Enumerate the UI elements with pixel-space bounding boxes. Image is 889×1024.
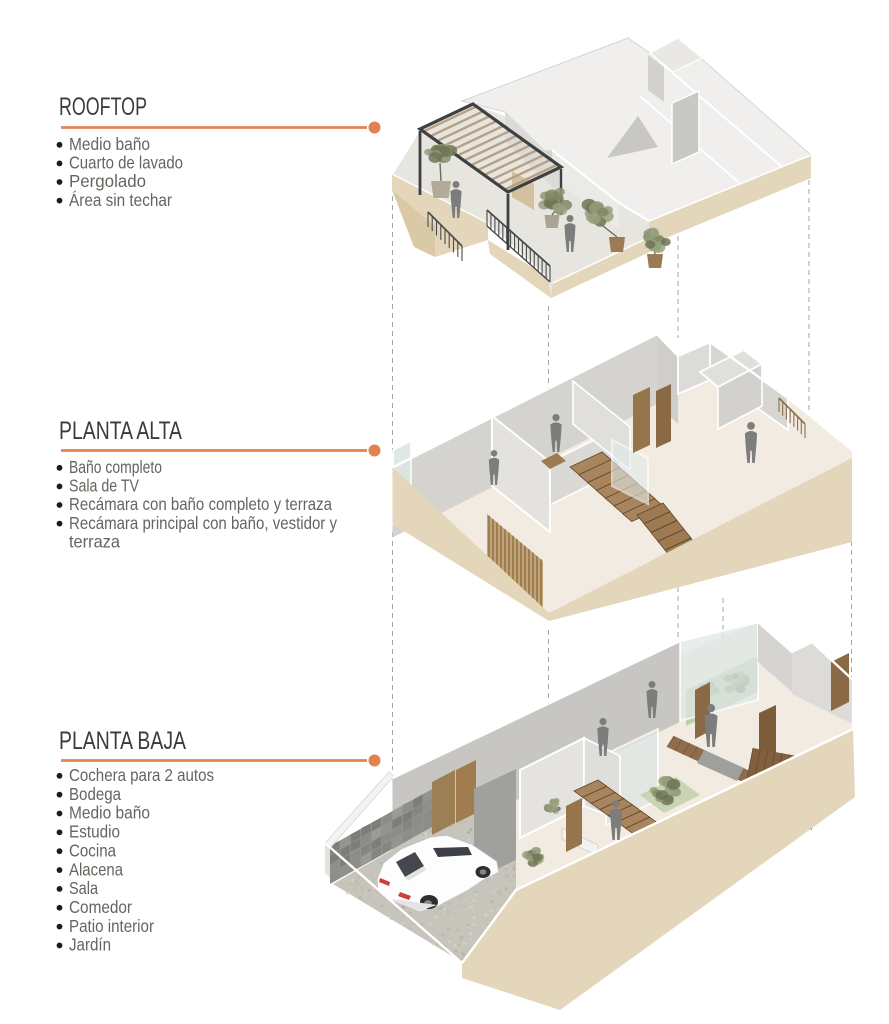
svg-text:Sala de TV: Sala de TV	[69, 476, 139, 496]
svg-text:Baño completo: Baño completo	[69, 457, 162, 477]
svg-text:PLANTA BAJA: PLANTA BAJA	[59, 727, 186, 755]
svg-text:Jardín: Jardín	[69, 935, 111, 955]
svg-text:ROOFTOP: ROOFTOP	[59, 93, 147, 121]
svg-text:Área sin techar: Área sin techar	[69, 190, 172, 210]
svg-text:Recámara principal con baño, v: Recámara principal con baño, vestidor y	[69, 513, 337, 533]
svg-text:Estudio: Estudio	[69, 822, 120, 842]
svg-text:Medio baño: Medio baño	[69, 803, 150, 823]
svg-text:Cuarto de lavado: Cuarto de lavado	[69, 153, 183, 173]
svg-text:Medio baño: Medio baño	[69, 134, 150, 154]
svg-text:Comedor: Comedor	[69, 897, 132, 917]
svg-text:Recámara con baño completo y t: Recámara con baño completo y terraza	[69, 494, 332, 514]
svg-text:Cochera para 2 autos: Cochera para 2 autos	[69, 765, 214, 785]
svg-text:Cocina: Cocina	[69, 840, 116, 860]
svg-text:PLANTA ALTA: PLANTA ALTA	[59, 417, 182, 445]
svg-text:Sala: Sala	[69, 878, 98, 898]
svg-text:Pergolado: Pergolado	[69, 171, 146, 191]
svg-text:terraza: terraza	[69, 531, 120, 551]
svg-text:Bodega: Bodega	[69, 784, 121, 804]
svg-text:Patio interior: Patio interior	[69, 916, 154, 936]
svg-text:Alacena: Alacena	[69, 859, 123, 879]
